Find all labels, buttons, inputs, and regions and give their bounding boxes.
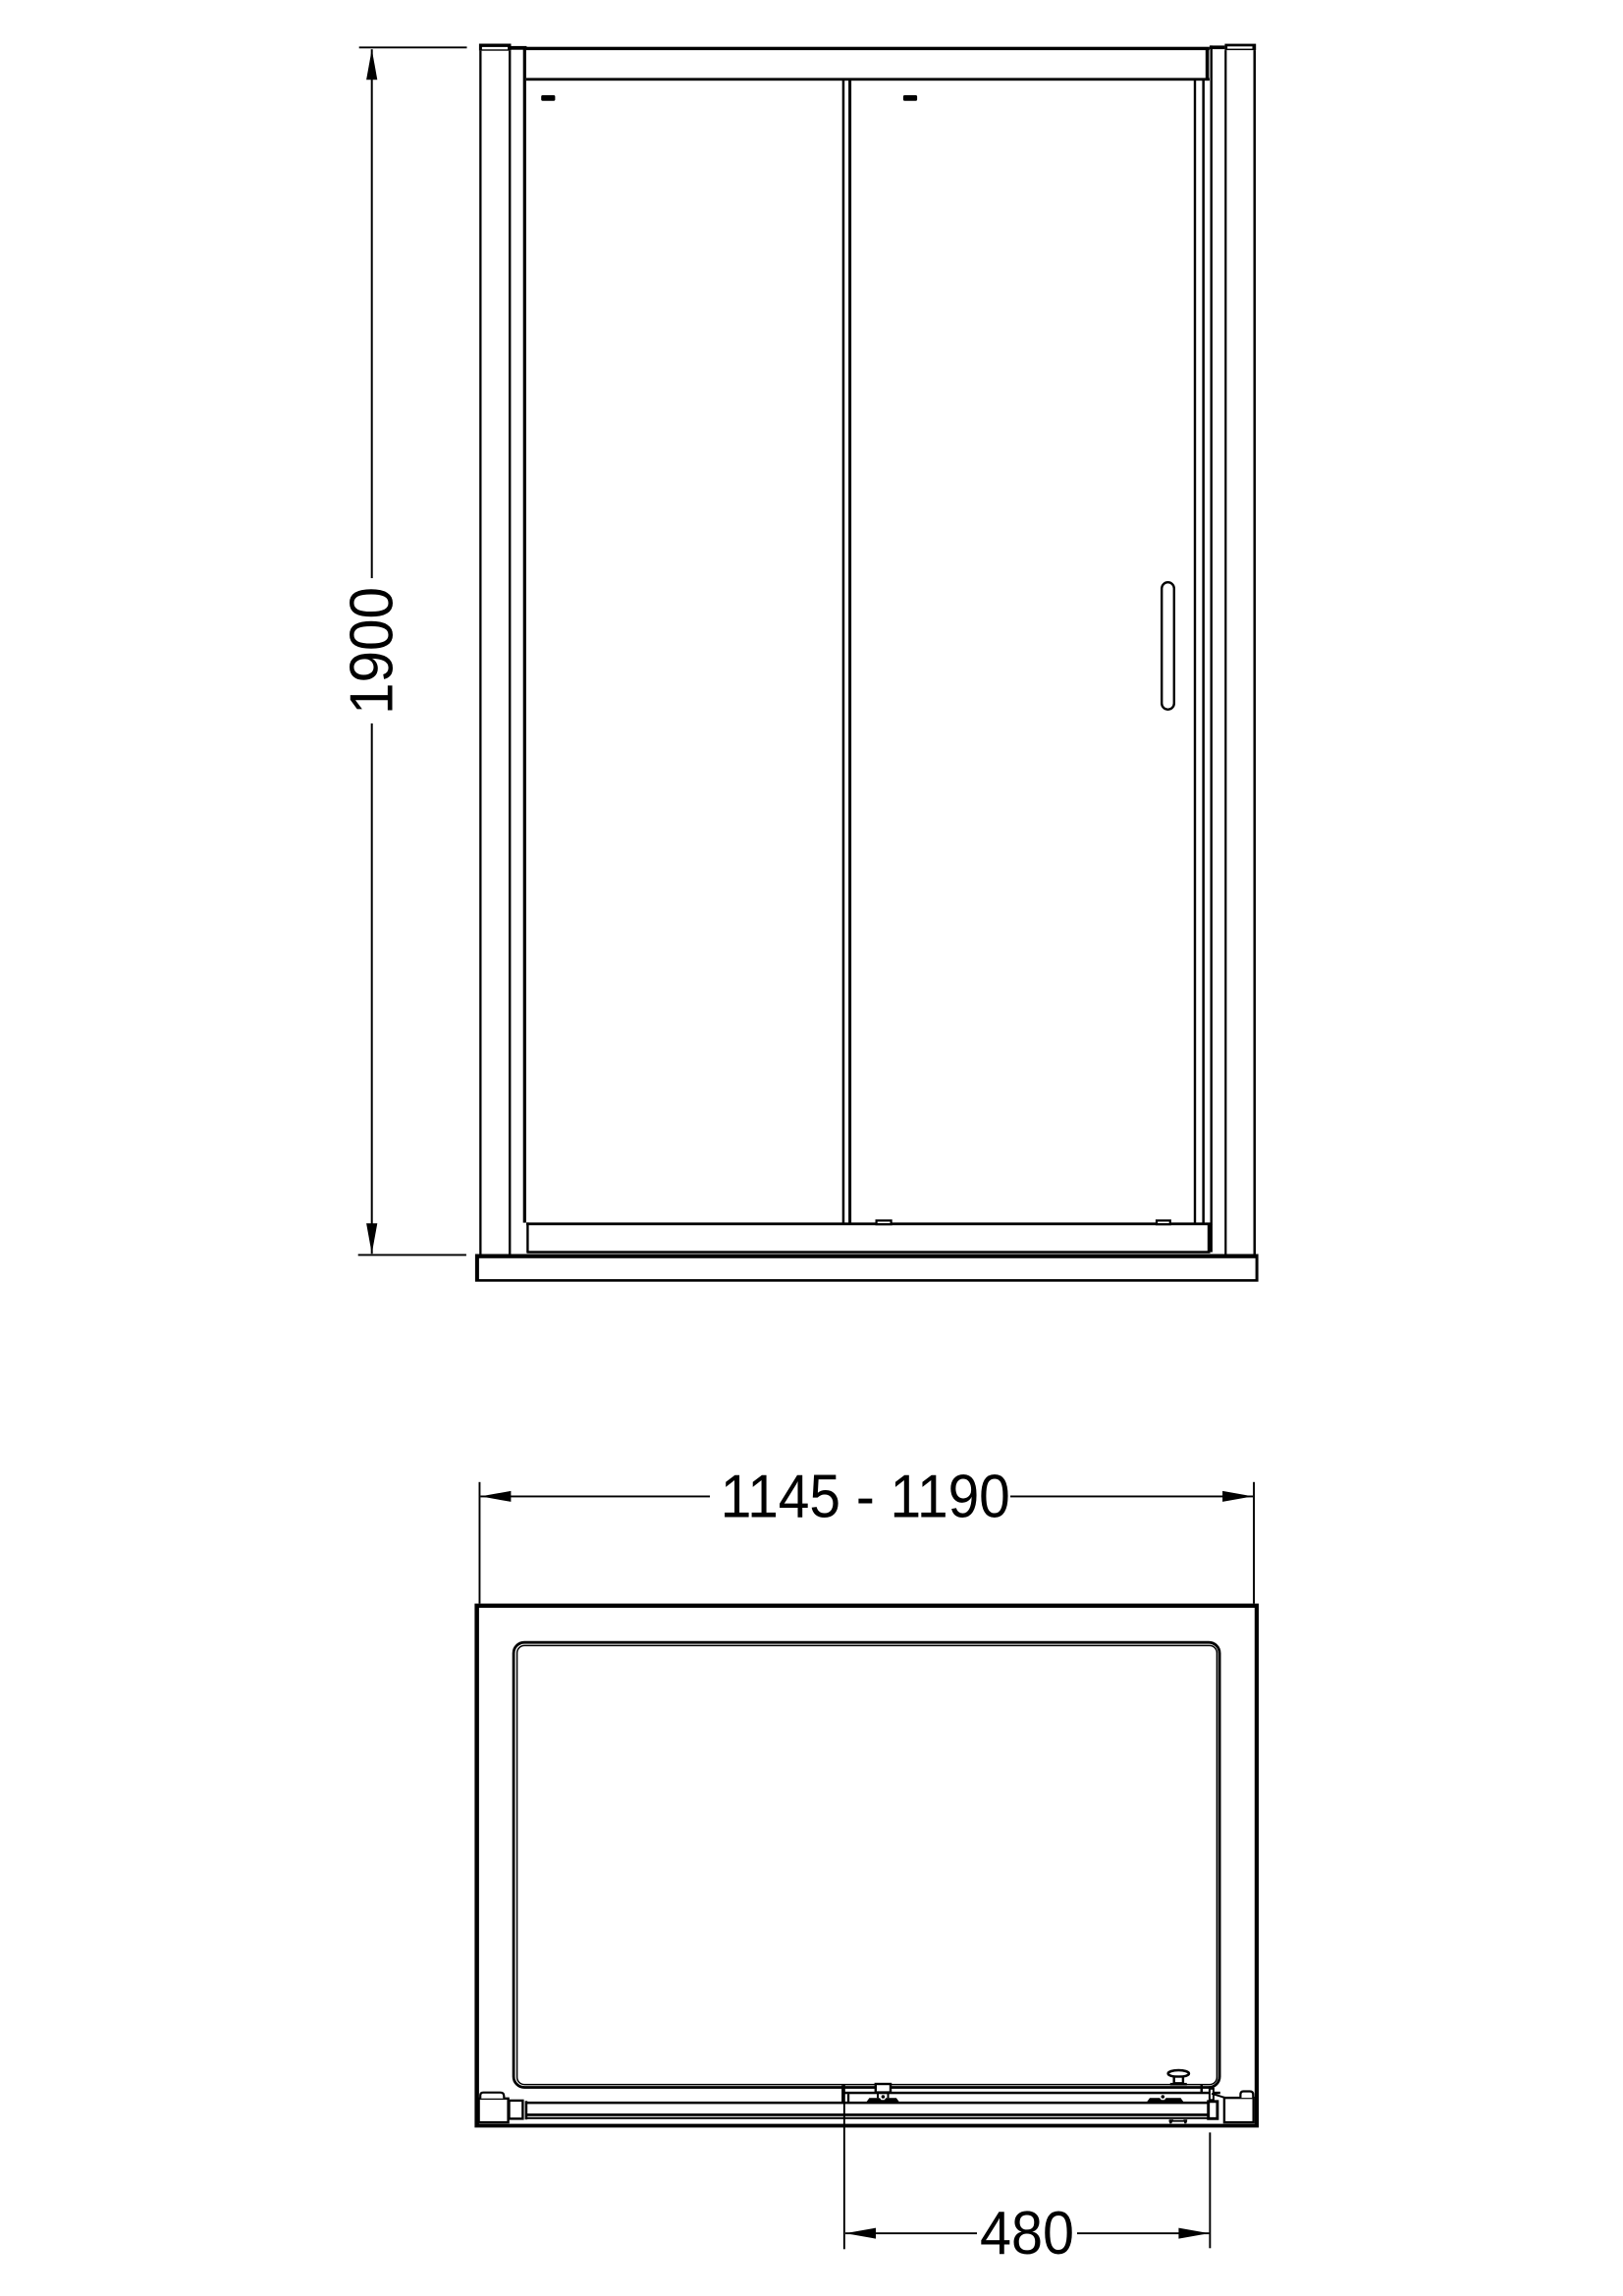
svg-text:1900: 1900 bbox=[339, 587, 406, 715]
svg-text:480: 480 bbox=[980, 2200, 1074, 2268]
svg-text:1145 - 1190: 1145 - 1190 bbox=[721, 1463, 1010, 1530]
